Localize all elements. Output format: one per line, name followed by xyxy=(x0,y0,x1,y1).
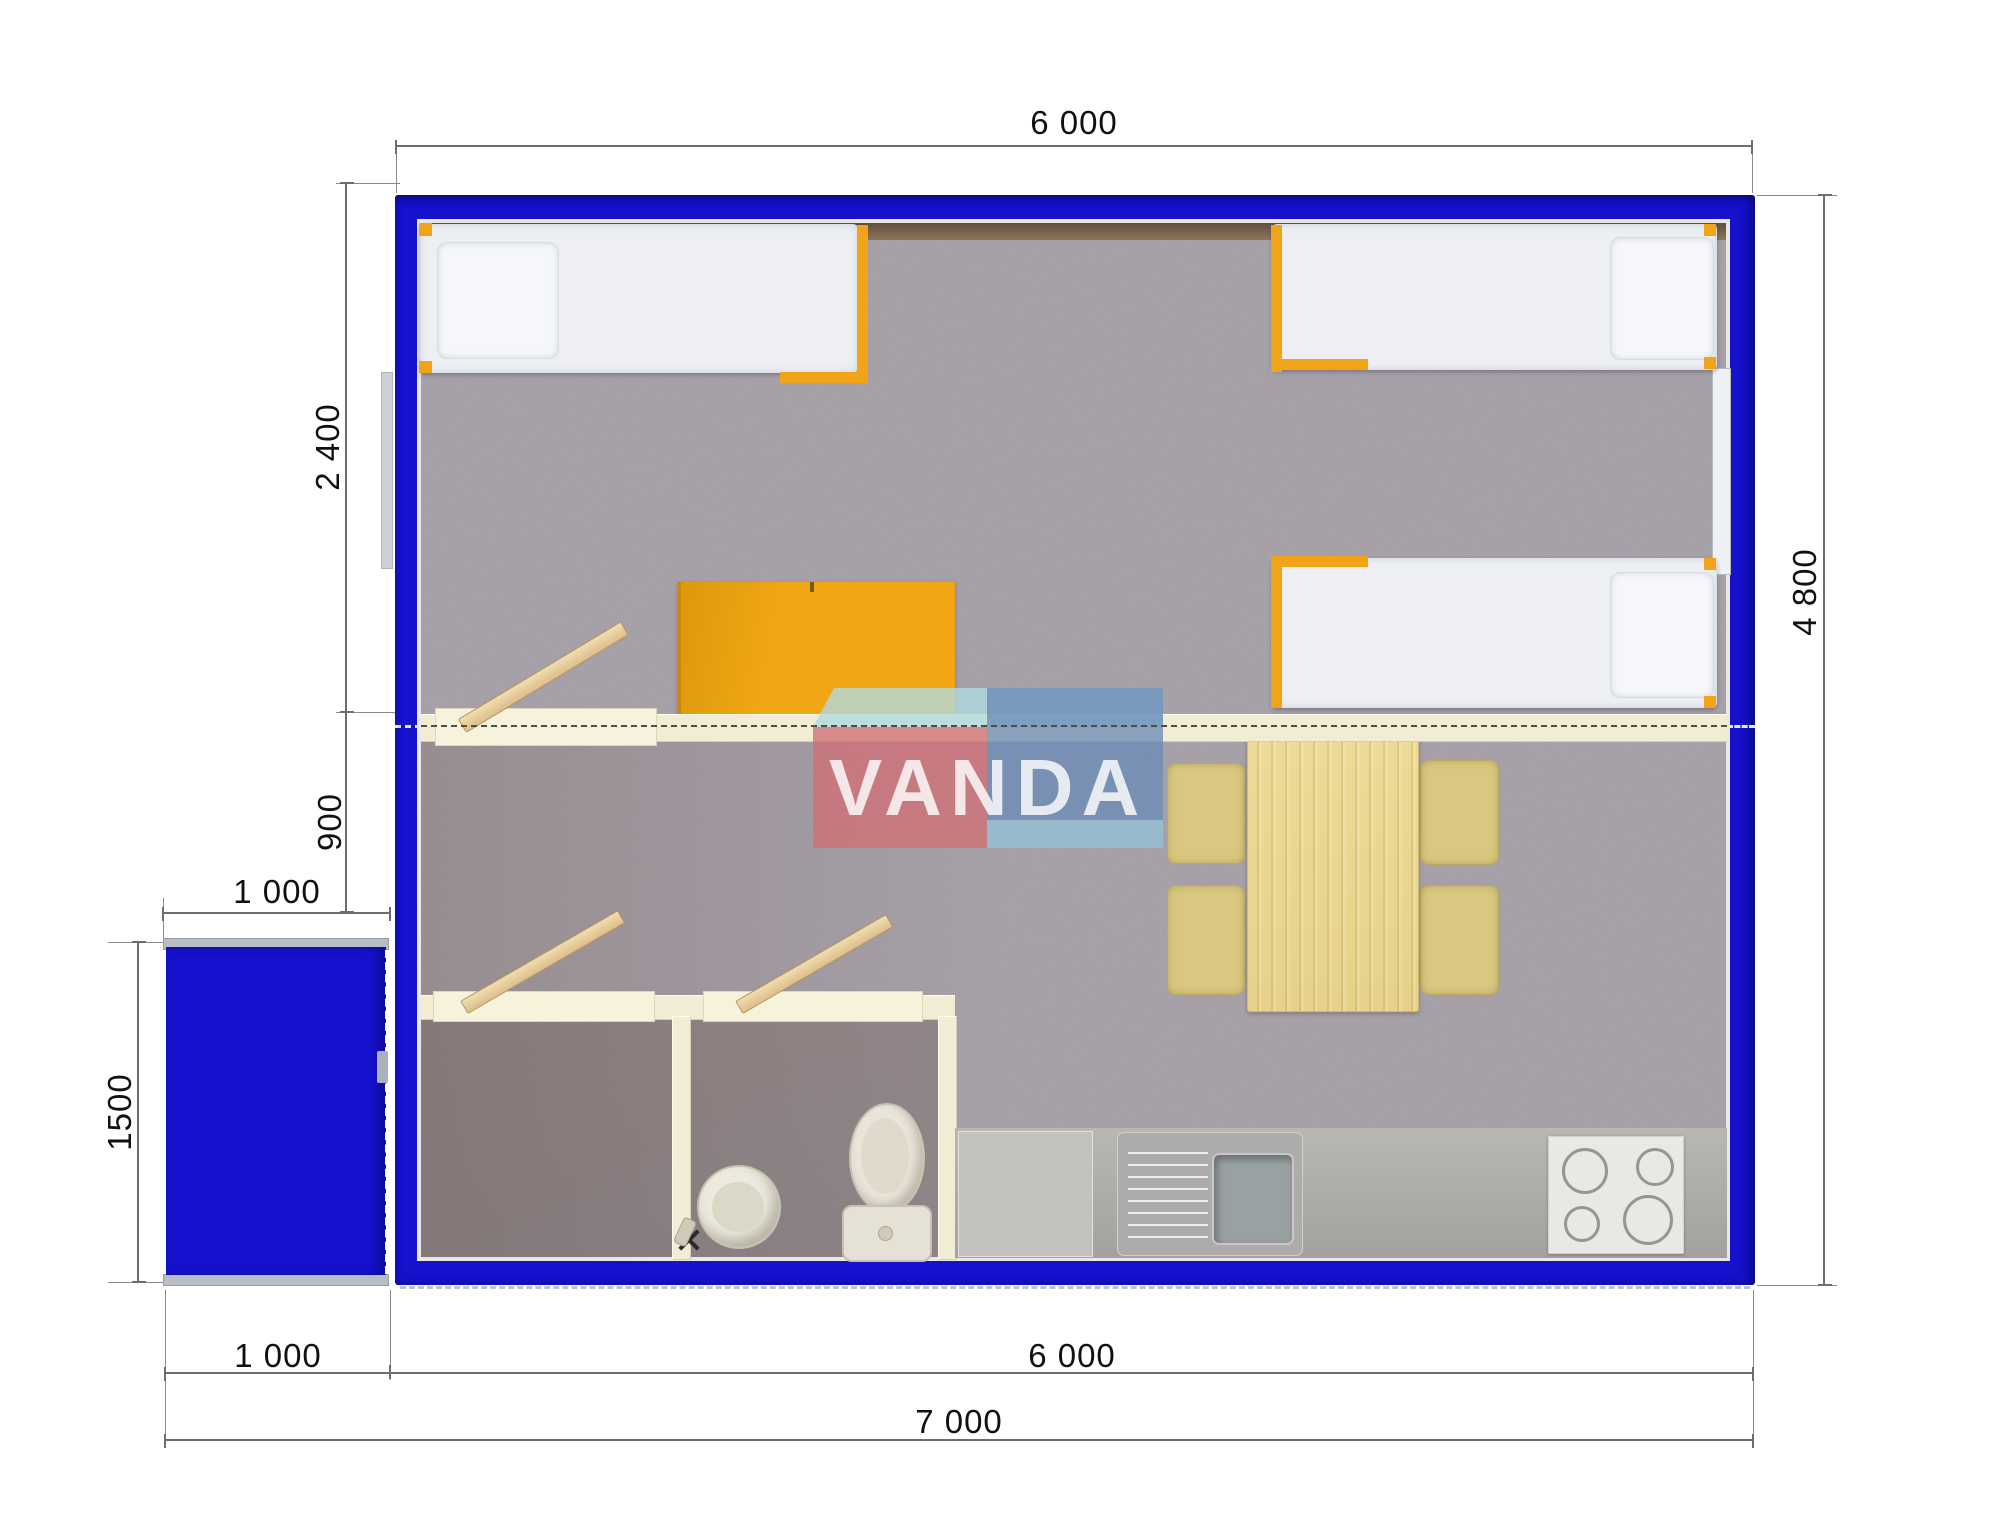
dimension-tick xyxy=(389,1365,391,1379)
bed-1-frame xyxy=(857,225,868,375)
watermark-text: VANDA xyxy=(813,740,1163,835)
drainboard-groove xyxy=(1128,1212,1208,1214)
wc-door-casing xyxy=(703,991,923,1022)
porch-step-bottom xyxy=(163,1274,389,1286)
bed-3-frame-post xyxy=(1704,696,1716,708)
dimension-bedroom-depth: 2 400 xyxy=(310,387,346,507)
dining-chair xyxy=(1167,885,1245,995)
sink-basin xyxy=(1212,1153,1294,1245)
stove-burner xyxy=(1623,1195,1673,1245)
dimension-bottom-porch-width: 1 000 xyxy=(218,1338,338,1374)
floor-plan-drawing: 6 000 2 400 900 1 000 1500 4 800 1 000 6… xyxy=(0,0,2000,1537)
drainboard-groove xyxy=(1128,1164,1208,1166)
bed-2-pillow xyxy=(1610,237,1714,360)
dining-chair xyxy=(1420,885,1499,995)
stove-burner xyxy=(1564,1206,1600,1242)
bed-2-frame xyxy=(1271,359,1368,370)
yellow-desk-seam xyxy=(810,582,814,592)
counter-module xyxy=(958,1131,1093,1257)
bed-3-frame xyxy=(1271,556,1368,567)
bed-2-frame-post xyxy=(1704,224,1716,236)
dimension-bottom-total-width: 7 000 xyxy=(899,1404,1019,1440)
module-joint-right xyxy=(1727,725,1755,728)
washbasin-bowl xyxy=(712,1182,764,1232)
bed-3-pillow xyxy=(1610,572,1714,698)
dimension-porch-width: 1 000 xyxy=(217,874,337,910)
bed-1-pillow xyxy=(437,242,559,359)
left-wall-window xyxy=(381,372,393,569)
bed-3-frame-post xyxy=(1704,558,1716,570)
bed-3-frame xyxy=(1271,559,1282,708)
dimension-line-porch-width xyxy=(163,912,390,914)
drainboard-groove xyxy=(1128,1236,1208,1238)
dimension-right-depth: 4 800 xyxy=(1787,532,1823,652)
bottom-hidden-edge-line xyxy=(400,1286,1750,1289)
porch xyxy=(166,947,386,1275)
dimension-bottom-main-width: 6 000 xyxy=(1012,1338,1132,1374)
dimension-line-top xyxy=(396,145,1752,147)
drainboard-groove xyxy=(1128,1200,1208,1202)
drainboard-groove xyxy=(1128,1188,1208,1190)
bed-1-frame-post xyxy=(419,361,432,373)
toilet-seat xyxy=(861,1118,909,1194)
bed-1-frame xyxy=(780,372,868,383)
bed-2-frame-post xyxy=(1704,357,1716,369)
entry-door-handle-icon xyxy=(377,1051,388,1083)
dining-chair xyxy=(1167,763,1245,864)
dimension-line-right-depth xyxy=(1823,195,1825,1285)
dining-chair xyxy=(1420,760,1499,865)
toilet-flush-button xyxy=(878,1226,893,1241)
dimension-line-bottom xyxy=(165,1372,1753,1374)
drainboard-groove xyxy=(1128,1152,1208,1154)
dining-table xyxy=(1247,738,1419,1012)
stove-burner xyxy=(1636,1148,1674,1186)
module-joint-left xyxy=(395,725,421,728)
right-wall-window xyxy=(1712,368,1731,575)
bed-1-frame-post xyxy=(419,223,432,236)
dimension-top-width: 6 000 xyxy=(1014,105,1134,141)
dimension-porch-depth: 1500 xyxy=(102,1052,138,1172)
dimension-partition-offset: 900 xyxy=(312,762,348,882)
partition-axis-dashed-line xyxy=(421,725,1727,727)
drainboard-groove xyxy=(1128,1224,1208,1226)
drainboard-groove xyxy=(1128,1176,1208,1178)
porch-entry-opening xyxy=(385,950,389,1274)
stove-burner xyxy=(1562,1148,1608,1194)
bed-2-frame xyxy=(1271,225,1282,372)
